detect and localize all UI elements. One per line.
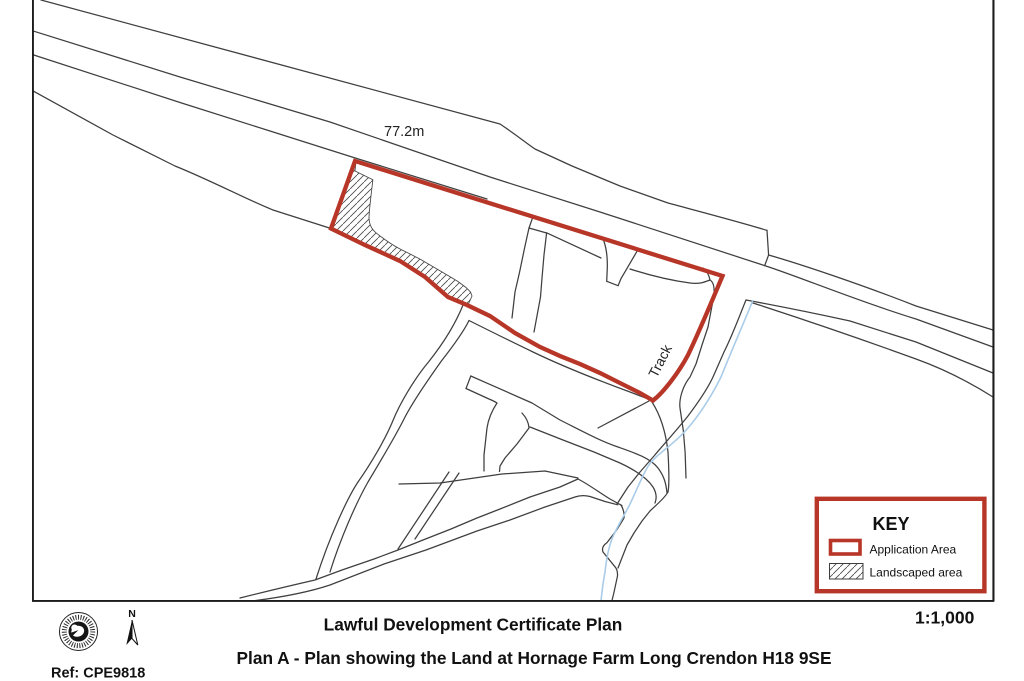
- svg-text:77.2m: 77.2m: [384, 124, 424, 140]
- svg-text:Landscaped area: Landscaped area: [870, 566, 963, 580]
- svg-text:Plan A - Plan showing the Land: Plan A - Plan showing the Land at Hornag…: [237, 648, 832, 668]
- svg-text:Lawful Development Certificate: Lawful Development Certificate Plan: [324, 615, 623, 635]
- svg-text:Ref: CPE9818: Ref: CPE9818: [51, 666, 145, 681]
- svg-text:1:1,000: 1:1,000: [915, 608, 975, 628]
- svg-text:Track: Track: [645, 341, 675, 380]
- svg-text:N: N: [128, 608, 136, 620]
- svg-text:Application Area: Application Area: [870, 543, 957, 557]
- svg-text:KEY: KEY: [872, 514, 909, 534]
